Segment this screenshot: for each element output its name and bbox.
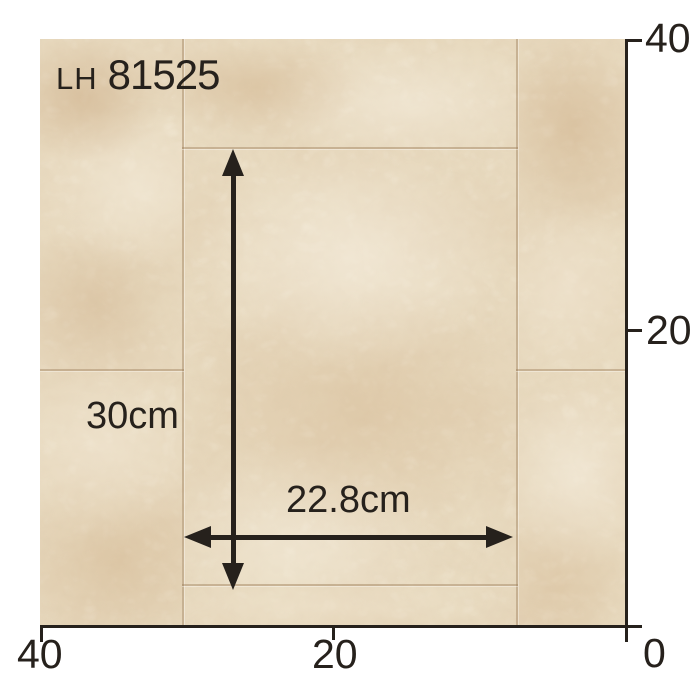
flooring-sample-photo: LH 81525 30cm 22.8cm — [40, 39, 625, 625]
grout-seam-left-column — [40, 369, 184, 371]
grout-seam-right-column — [516, 369, 625, 371]
width-dimension-label: 22.8cm — [286, 481, 411, 519]
ruler-line-right — [625, 39, 628, 642]
ruler-tick-right-40 — [625, 39, 642, 42]
ruler-label-bottom-40: 40 — [17, 634, 63, 675]
arrow-head-up-icon — [222, 149, 244, 176]
horizontal-arrow-shaft — [209, 535, 488, 540]
ruler-label-bottom-20: 20 — [312, 634, 358, 675]
product-series-label: LH — [56, 61, 98, 97]
arrow-head-right-icon — [486, 526, 513, 548]
vertical-arrow-shaft — [231, 173, 236, 565]
ruler-line-bottom — [40, 625, 642, 628]
grout-seam-vertical-right — [516, 39, 518, 625]
arrow-head-down-icon — [222, 563, 244, 590]
ruler-label-origin-0: 0 — [643, 633, 666, 674]
arrow-head-left-icon — [184, 526, 211, 548]
height-dimension-label: 30cm — [86, 397, 179, 435]
product-number-label: 81525 — [108, 51, 220, 99]
ruler-tick-right-20 — [625, 329, 642, 332]
ruler-label-right-40: 40 — [645, 18, 691, 59]
catalog-image: LH 81525 30cm 22.8cm 40 20 0 40 20 — [0, 0, 700, 700]
ruler-label-right-20: 20 — [646, 310, 692, 351]
product-code: LH 81525 — [56, 51, 219, 99]
